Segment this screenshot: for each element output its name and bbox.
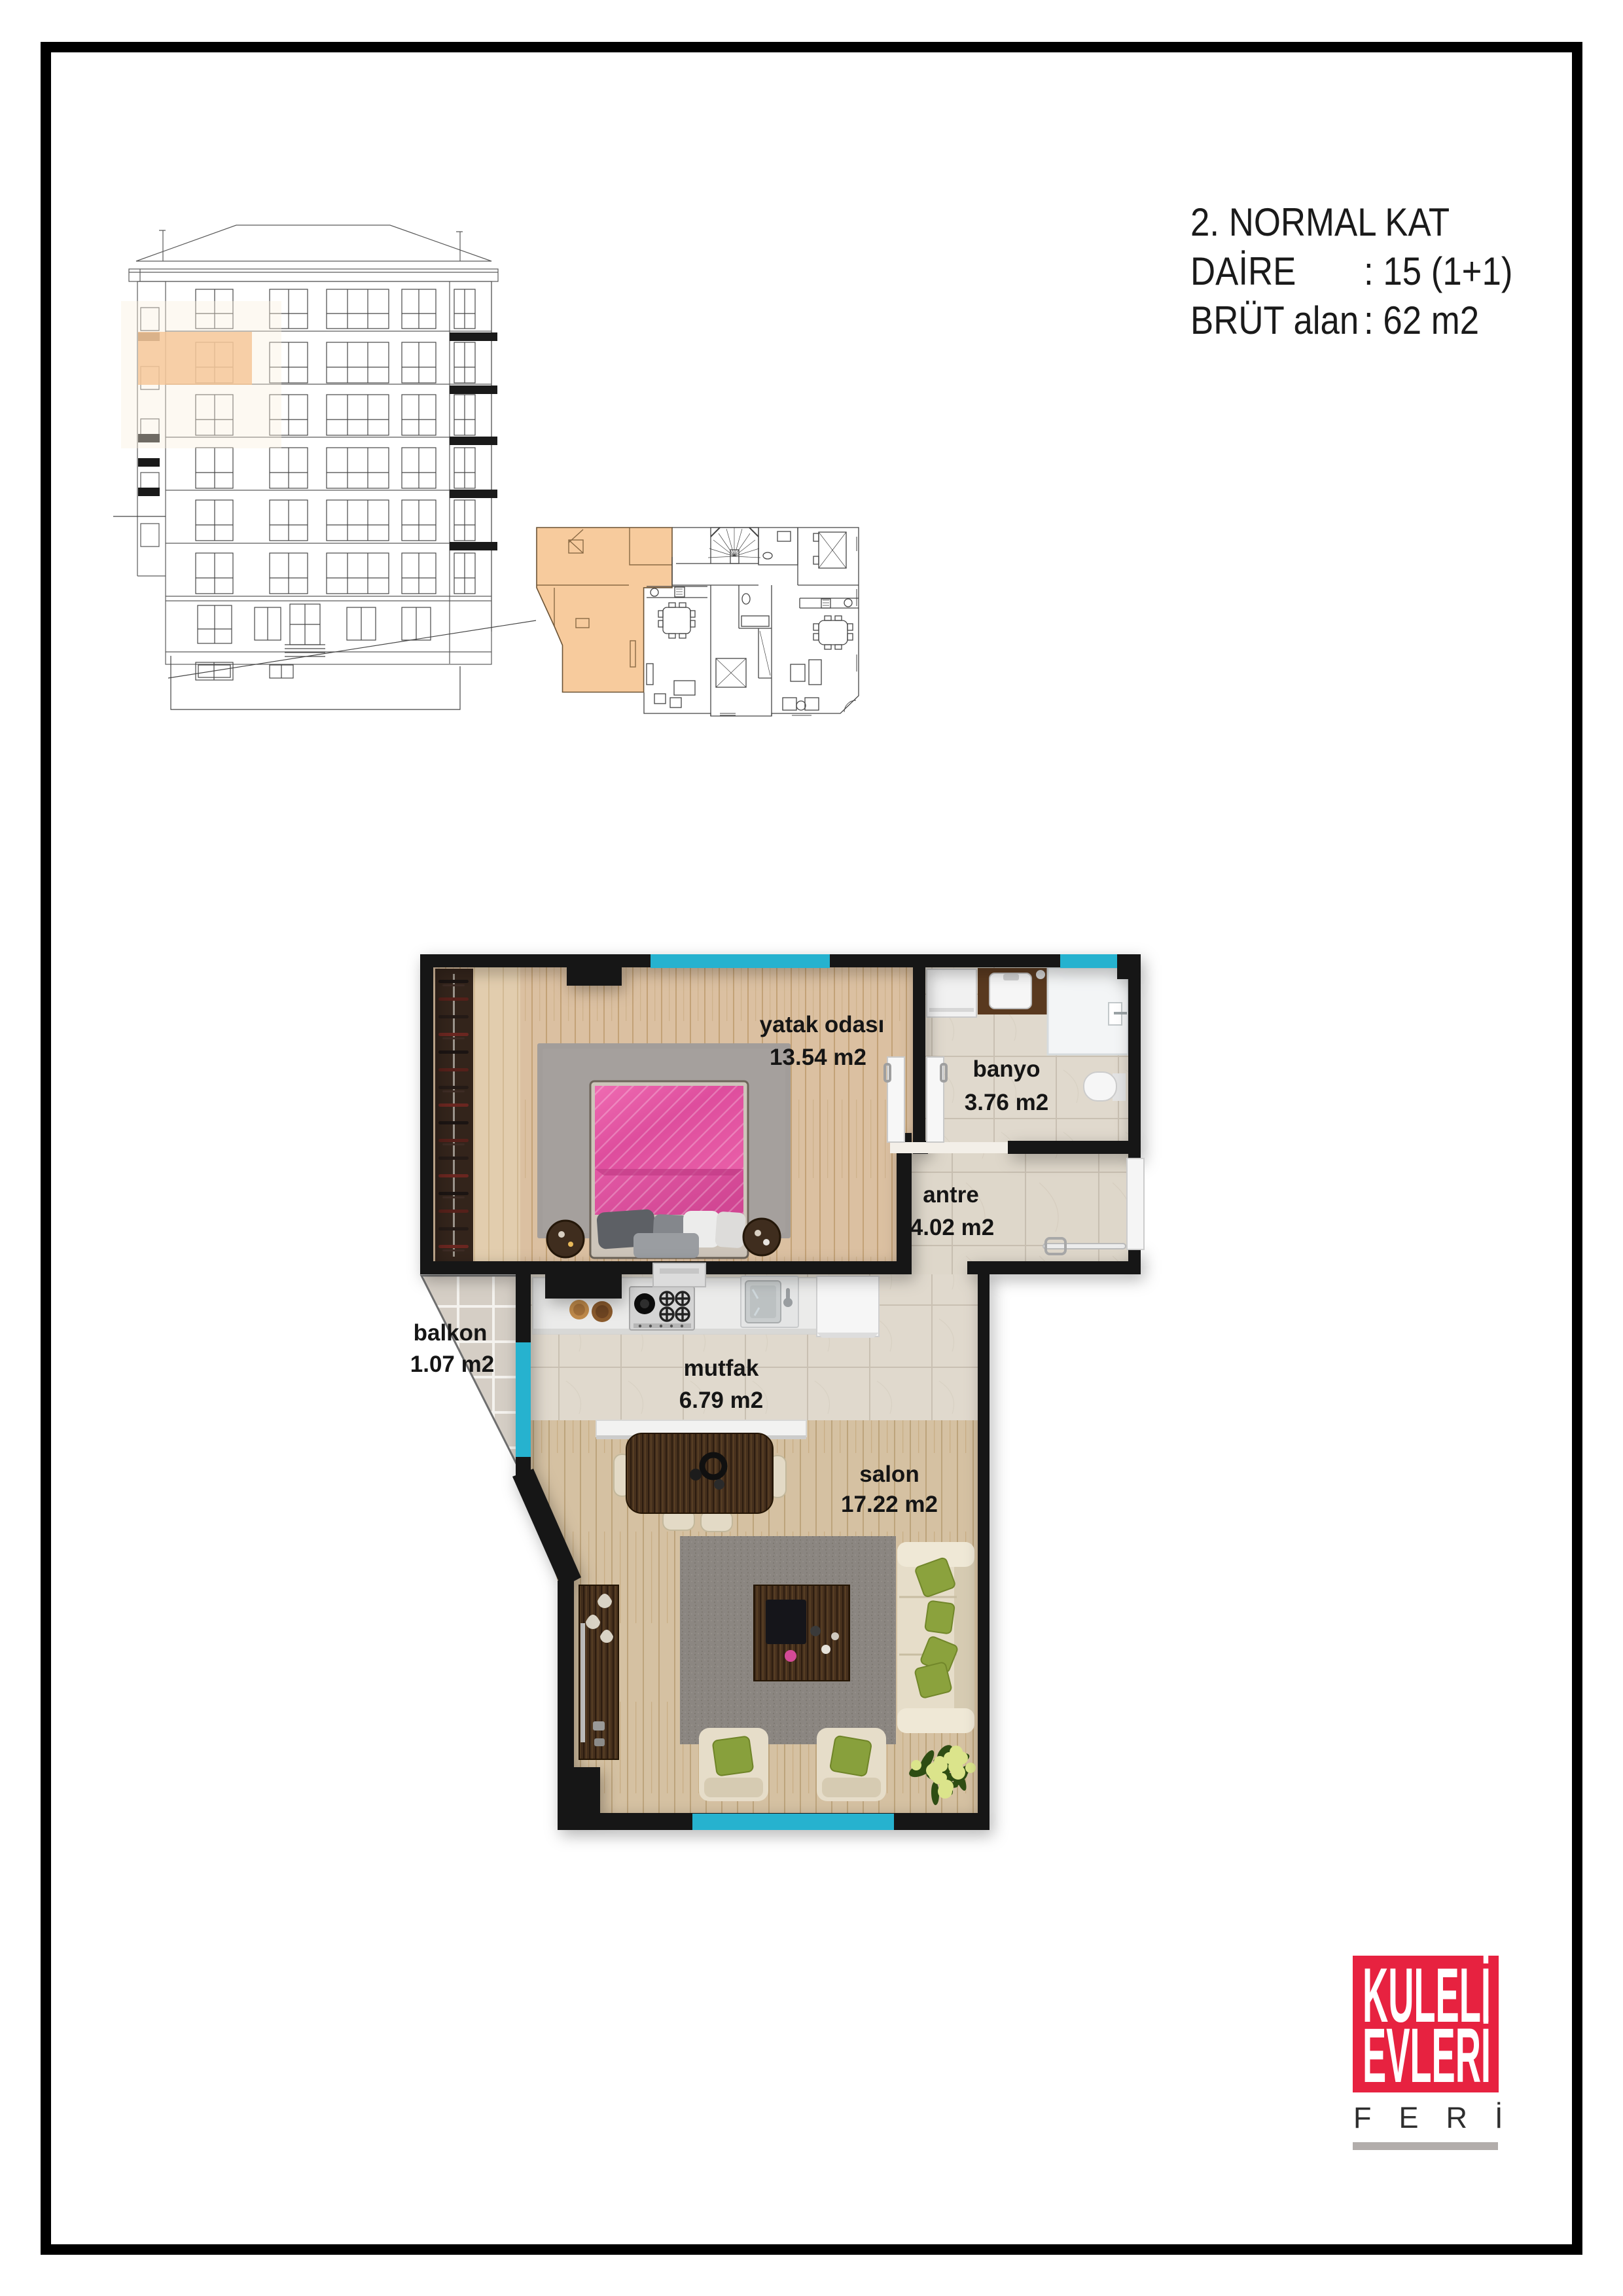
svg-text:EVLERİ: EVLERİ	[1363, 2013, 1491, 2099]
svg-text:FERİ: FERİ	[1353, 2101, 1531, 2134]
